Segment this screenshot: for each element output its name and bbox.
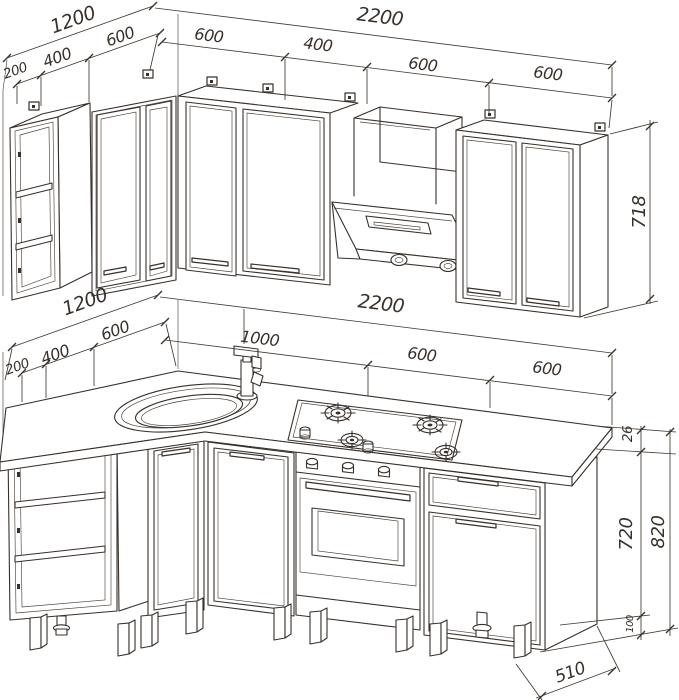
- hinge-icon: [17, 528, 20, 533]
- cabinet-door: [154, 444, 198, 610]
- upper-wall-cabinet-right-600: [456, 120, 608, 317]
- leg: [186, 598, 203, 634]
- drawing-canvas: 1200 600 400 200 2200 600 400 600 600 71…: [0, 0, 679, 700]
- dim-upper-left-400: 400: [40, 43, 74, 71]
- bracket-icon: [263, 84, 273, 92]
- leg: [514, 622, 531, 658]
- dim-legs-100: 100: [625, 615, 636, 633]
- oven-knob: [343, 462, 354, 473]
- hood-lamp-icon: [440, 261, 456, 272]
- upper-corner-cabinet: [92, 96, 176, 296]
- hinge-icon: [18, 152, 21, 157]
- dim-upper-main-400: 400: [302, 33, 333, 55]
- cabinet-door: [463, 136, 516, 304]
- bracket-icon: [595, 123, 605, 131]
- dim-upper-height-718: 718: [629, 196, 650, 229]
- dim-lower-left-400: 400: [38, 340, 72, 368]
- hinge-icon: [18, 218, 21, 223]
- cabinet-door: [243, 109, 324, 280]
- cabinet-door: [522, 143, 573, 311]
- dim-upper-main-600b: 600: [407, 53, 438, 75]
- bracket-icon: [207, 77, 217, 85]
- dim-upper-left-200: 200: [1, 59, 29, 82]
- bracket-icon: [29, 102, 39, 110]
- dim-lower-left-600: 600: [98, 316, 132, 344]
- leg: [118, 620, 135, 656]
- dim-lower-main-1000: 1000: [240, 327, 281, 351]
- dim-lower-main-600a: 600: [406, 343, 437, 365]
- cabinet-door: [97, 107, 140, 288]
- hinge-icon: [17, 472, 20, 477]
- dim-upper-main-600c: 600: [532, 62, 563, 84]
- dim-total-820: 820: [648, 516, 669, 549]
- bracket-icon: [345, 93, 355, 101]
- dim-upper-main-total: 2200: [356, 3, 405, 31]
- oven-knob: [379, 466, 390, 477]
- dim-lower-main-600b: 600: [531, 357, 562, 379]
- dim-body-720: 720: [616, 518, 637, 551]
- upper-wall-cabinet-left-600: [178, 86, 358, 285]
- leg: [396, 616, 413, 652]
- hob-knob: [363, 441, 373, 453]
- base-corner-cabinet: [148, 438, 204, 618]
- dim-lower-main-total: 2200: [357, 290, 406, 318]
- leg: [141, 612, 158, 648]
- sink-base-cabinet: [208, 442, 294, 616]
- cabinet-door: [214, 448, 288, 610]
- dim-upper-left-total: 1200: [47, 2, 98, 39]
- lower-view-base-cabinets: 1200 600 400 200 2200 1000 600 600 26 72…: [0, 284, 678, 700]
- faucet-spout: [252, 356, 261, 369]
- cabinet-door: [186, 102, 236, 276]
- oven-knob: [307, 458, 318, 469]
- dim-upper-left-600: 600: [103, 22, 137, 50]
- hood-lamp-icon: [391, 255, 407, 266]
- dim-lower-left-200: 200: [3, 355, 31, 378]
- dim-worktop-26: 26: [620, 426, 636, 442]
- leg: [310, 608, 327, 644]
- hood-duct-box: [354, 107, 462, 204]
- bracket-icon: [485, 110, 495, 118]
- oven: [296, 452, 420, 630]
- hinge-icon: [17, 584, 20, 589]
- dim-depth-510: 510: [552, 658, 588, 687]
- dim-upper-main-600a: 600: [193, 24, 224, 46]
- hob-knob: [300, 427, 310, 439]
- kitchen-technical-drawing: 1200 600 400 200 2200 600 400 600 600 71…: [0, 0, 679, 700]
- upper-view-wall-cabinets: 1200 600 400 200 2200 600 400 600 600 71…: [1, 2, 658, 318]
- leg: [274, 604, 291, 640]
- bracket-icon: [143, 70, 153, 78]
- upper-end-shelf-cabinet: [10, 103, 92, 300]
- adjustable-foot: [54, 616, 70, 635]
- hinge-icon: [18, 268, 21, 273]
- leg: [430, 620, 447, 656]
- leg: [30, 614, 47, 650]
